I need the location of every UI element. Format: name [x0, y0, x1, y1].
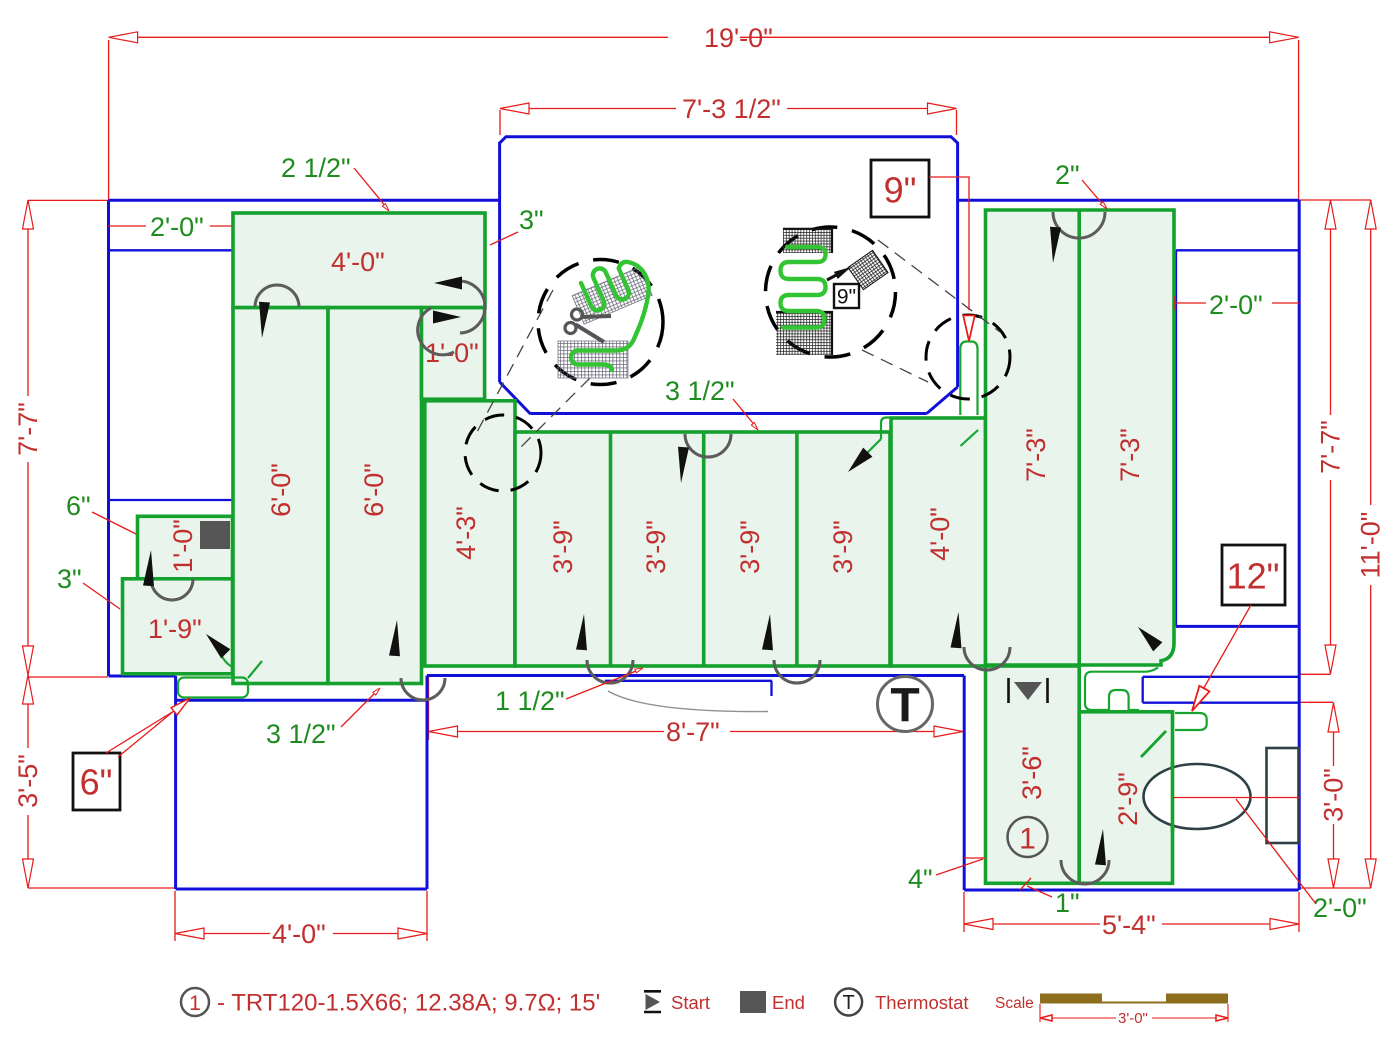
- svg-text:7'-3 1/2": 7'-3 1/2": [682, 94, 781, 124]
- svg-text:3'-9": 3'-9": [735, 520, 765, 574]
- svg-text:12": 12": [1227, 556, 1280, 597]
- svg-text:2'-0": 2'-0": [1209, 290, 1263, 320]
- svg-text:3'-9": 3'-9": [828, 520, 858, 574]
- svg-text:3'-9": 3'-9": [641, 520, 671, 574]
- svg-text:1: 1: [189, 992, 201, 1015]
- svg-text:7'-3": 7'-3": [1021, 428, 1051, 482]
- svg-text:3": 3": [519, 205, 544, 235]
- svg-text:- TRT120-1.5X66; 12.38A; 9.7Ω;: - TRT120-1.5X66; 12.38A; 9.7Ω; 15': [217, 990, 600, 1017]
- svg-text:Thermostat: Thermostat: [875, 992, 969, 1013]
- svg-text:5'-4": 5'-4": [1102, 910, 1156, 940]
- svg-text:3 1/2": 3 1/2": [266, 719, 336, 749]
- svg-text:3": 3": [57, 564, 82, 594]
- svg-text:2'-0": 2'-0": [1313, 893, 1367, 923]
- svg-text:7'-7": 7'-7": [1316, 420, 1346, 474]
- svg-text:1'-9": 1'-9": [148, 614, 202, 644]
- svg-text:2'-0": 2'-0": [150, 212, 204, 242]
- svg-text:2'-9": 2'-9": [1113, 772, 1143, 826]
- svg-text:1 1/2": 1 1/2": [495, 686, 565, 716]
- svg-text:T: T: [890, 680, 919, 733]
- svg-text:4'-0": 4'-0": [272, 919, 326, 949]
- svg-text:3 1/2": 3 1/2": [665, 376, 735, 406]
- svg-text:3'-9": 3'-9": [548, 520, 578, 574]
- svg-text:6": 6": [66, 491, 91, 521]
- svg-text:Start: Start: [671, 992, 710, 1013]
- svg-text:Scale: Scale: [995, 995, 1034, 1012]
- svg-text:19'-0": 19'-0": [704, 23, 773, 53]
- svg-text:End: End: [772, 992, 805, 1013]
- svg-text:4": 4": [908, 864, 933, 894]
- svg-text:7'-7": 7'-7": [13, 402, 43, 456]
- svg-text:8'-7": 8'-7": [666, 717, 720, 747]
- svg-text:4'-3": 4'-3": [451, 506, 481, 560]
- svg-text:7'-3": 7'-3": [1115, 428, 1145, 482]
- svg-text:3'-0": 3'-0": [1319, 768, 1349, 822]
- svg-text:6": 6": [80, 762, 113, 803]
- svg-text:11'-0": 11'-0": [1356, 512, 1386, 579]
- svg-text:4'-0": 4'-0": [925, 507, 955, 561]
- svg-text:2 1/2": 2 1/2": [281, 153, 351, 183]
- svg-text:6'-0": 6'-0": [266, 463, 296, 517]
- svg-text:3'-6": 3'-6": [1017, 746, 1047, 800]
- svg-text:1: 1: [1019, 823, 1036, 856]
- svg-text:1": 1": [1055, 888, 1080, 918]
- svg-text:9": 9": [837, 286, 856, 309]
- svg-text:3'-0": 3'-0": [1118, 1010, 1148, 1027]
- svg-text:1'-0": 1'-0": [168, 519, 198, 573]
- svg-text:9": 9": [884, 170, 917, 211]
- svg-text:2": 2": [1055, 160, 1080, 190]
- svg-text:6'-0": 6'-0": [359, 463, 389, 517]
- svg-text:3'-5": 3'-5": [13, 754, 43, 808]
- svg-text:T: T: [842, 992, 854, 1014]
- svg-text:4'-0": 4'-0": [331, 247, 385, 277]
